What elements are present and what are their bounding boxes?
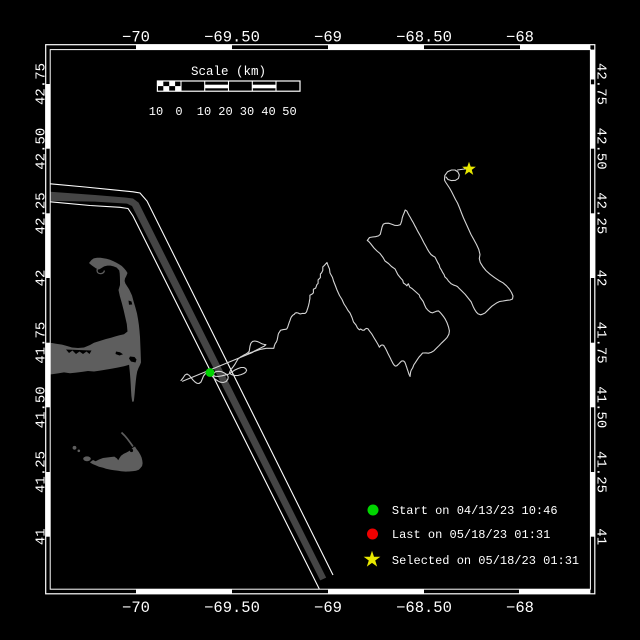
svg-text:Start on 04/13/23 10:46: Start on 04/13/23 10:46 [392,504,558,518]
svg-text:42.50: 42.50 [34,128,50,170]
svg-text:41: 41 [593,528,609,545]
svg-text:42.50: 42.50 [593,128,609,170]
svg-text:50: 50 [282,105,296,119]
svg-text:−69.50: −69.50 [204,29,260,47]
svg-text:10: 10 [149,105,163,119]
svg-text:41: 41 [34,528,50,545]
svg-text:41.75: 41.75 [34,322,50,364]
svg-text:41.75: 41.75 [593,322,609,364]
svg-text:10: 10 [197,105,211,119]
svg-text:30: 30 [240,105,254,119]
svg-text:0: 0 [175,105,182,119]
svg-text:42.25: 42.25 [34,192,50,234]
svg-text:−68.50: −68.50 [396,599,452,617]
svg-text:Scale (km): Scale (km) [191,65,266,79]
svg-text:40: 40 [261,105,275,119]
svg-text:42.75: 42.75 [593,63,609,105]
svg-text:−70: −70 [122,599,150,617]
svg-text:41.25: 41.25 [34,451,50,493]
svg-text:−69: −69 [314,29,342,47]
svg-text:42.25: 42.25 [593,192,609,234]
svg-text:−68.50: −68.50 [396,29,452,47]
svg-text:−68: −68 [506,599,534,617]
svg-text:−69: −69 [314,599,342,617]
svg-text:42: 42 [34,270,50,287]
svg-text:Last on 05/18/23 01:31: Last on 05/18/23 01:31 [392,528,550,542]
svg-text:41.50: 41.50 [593,386,609,428]
svg-text:Selected on 05/18/23 01:31: Selected on 05/18/23 01:31 [392,554,579,568]
svg-text:42: 42 [593,270,609,287]
svg-text:−68: −68 [506,29,534,47]
svg-text:−70: −70 [122,29,150,47]
svg-text:20: 20 [218,105,232,119]
svg-text:41.25: 41.25 [593,451,609,493]
svg-text:42.75: 42.75 [34,63,50,105]
svg-text:41.50: 41.50 [34,386,50,428]
svg-text:−69.50: −69.50 [204,599,260,617]
